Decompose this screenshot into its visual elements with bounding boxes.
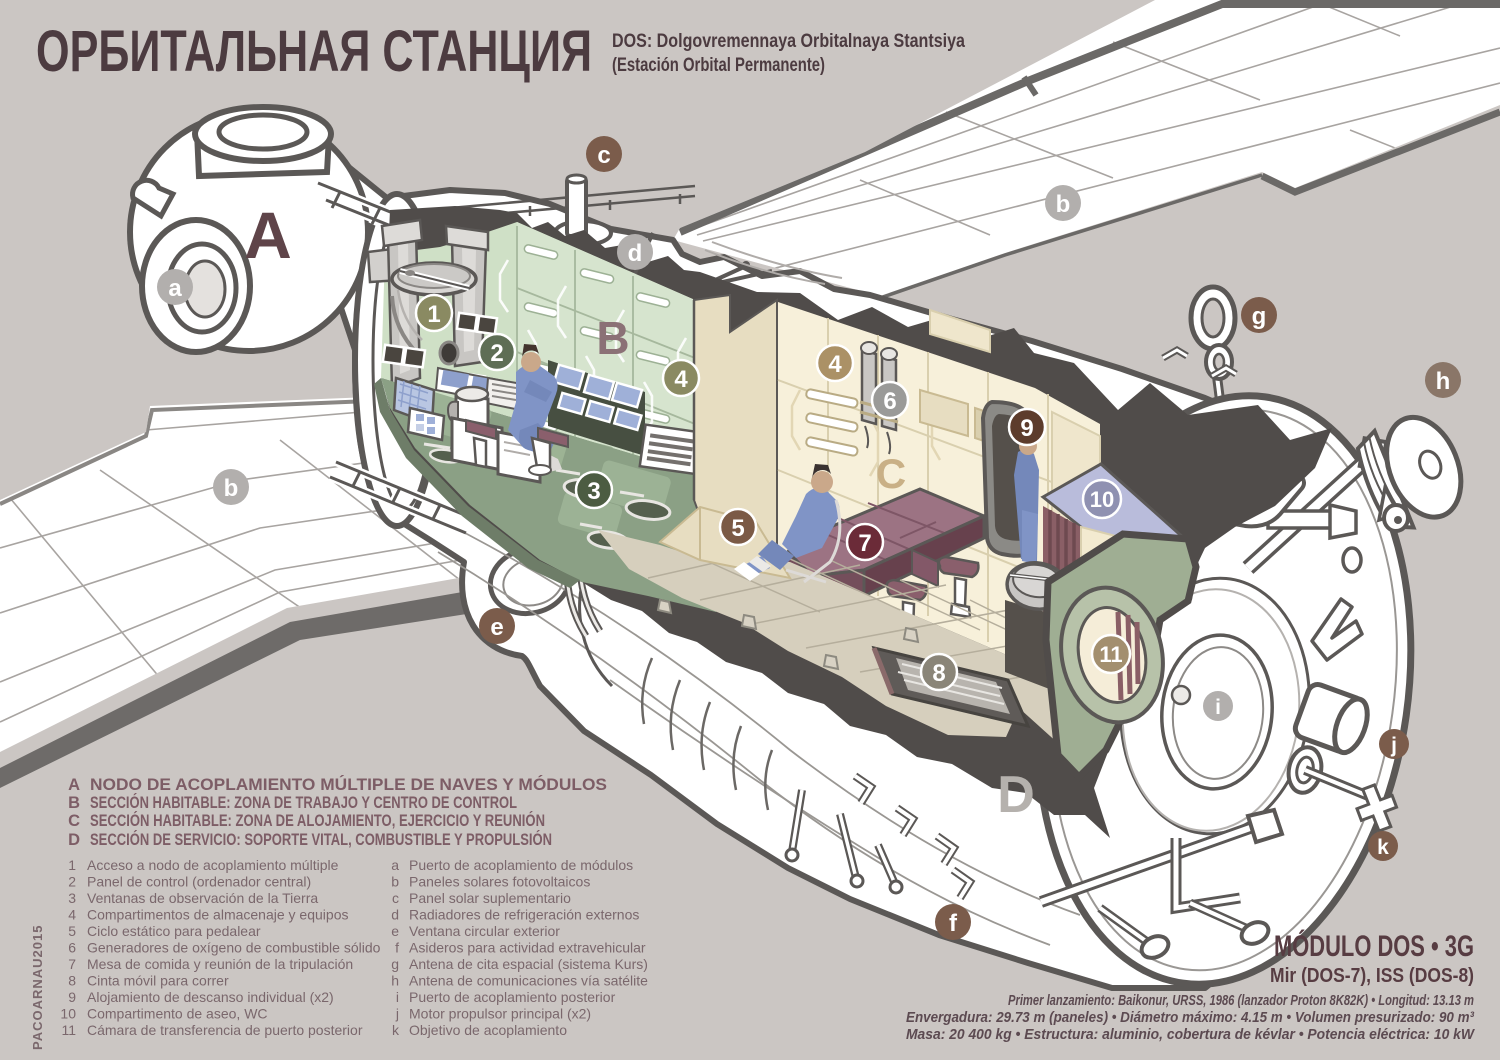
svg-text:C: C bbox=[876, 450, 906, 497]
svg-text:Asideros para actividad extrav: Asideros para actividad extravehicular bbox=[409, 940, 646, 956]
svg-text:Antena de cita espacial (siste: Antena de cita espacial (sistema Kurs) bbox=[409, 956, 648, 972]
svg-text:Mir (DOS-7), ISS (DOS-8): Mir (DOS-7), ISS (DOS-8) bbox=[1270, 965, 1474, 987]
svg-text:c: c bbox=[597, 142, 610, 169]
svg-text:c: c bbox=[392, 890, 399, 906]
svg-text:j: j bbox=[1390, 734, 1397, 757]
svg-text:4: 4 bbox=[828, 351, 842, 378]
svg-text:d: d bbox=[628, 240, 643, 267]
svg-text:Puerto de acoplamiento posteri: Puerto de acoplamiento posterior bbox=[409, 989, 616, 1005]
svg-text:Ciclo estático para pedalear: Ciclo estático para pedalear bbox=[87, 923, 261, 939]
svg-text:Cámara de transferencia de pue: Cámara de transferencia de puerto poster… bbox=[87, 1022, 363, 1038]
svg-text:Envergadura: 29.73 m (paneles): Envergadura: 29.73 m (paneles) • Diámetr… bbox=[906, 1009, 1475, 1026]
svg-text:g: g bbox=[1252, 303, 1267, 330]
svg-text:Ventanas de observación de la: Ventanas de observación de la Tierra bbox=[87, 890, 318, 906]
svg-text:Motor propulsor principal (x2): Motor propulsor principal (x2) bbox=[409, 1006, 591, 1022]
svg-text:Masa: 20 400 kg • Estructura:: Masa: 20 400 kg • Estructura: aluminio, … bbox=[906, 1026, 1476, 1043]
svg-text:NODO DE ACOPLAMIENTO MÚLTIPLE: NODO DE ACOPLAMIENTO MÚLTIPLE DE NAVES Y… bbox=[90, 775, 607, 794]
svg-text:MÓDULO DOS • 3G: MÓDULO DOS • 3G bbox=[1274, 929, 1474, 963]
svg-text:(Estación Orbital Permanente): (Estación Orbital Permanente) bbox=[612, 55, 825, 76]
svg-text:k: k bbox=[392, 1022, 400, 1038]
svg-text:9: 9 bbox=[68, 989, 76, 1005]
svg-text:8: 8 bbox=[68, 973, 76, 989]
svg-text:SECCIÓN DE SERVICIO: SOPORTE V: SECCIÓN DE SERVICIO: SOPORTE VITAL, COMB… bbox=[90, 830, 552, 849]
svg-text:f: f bbox=[949, 910, 958, 937]
svg-text:4: 4 bbox=[68, 907, 76, 923]
svg-text:j: j bbox=[395, 1006, 399, 1022]
svg-text:A: A bbox=[68, 776, 80, 794]
svg-text:8: 8 bbox=[932, 660, 945, 687]
svg-text:Puerto de acoplamiento de módu: Puerto de acoplamiento de módulos bbox=[409, 857, 633, 873]
svg-text:10: 10 bbox=[60, 1006, 76, 1022]
svg-text:f: f bbox=[395, 940, 399, 956]
svg-text:11: 11 bbox=[1099, 642, 1122, 667]
svg-text:PACOARNAU2015: PACOARNAU2015 bbox=[30, 925, 45, 1050]
svg-text:5: 5 bbox=[731, 515, 744, 542]
svg-text:Radiadores de refrigeración ex: Radiadores de refrigeración externos bbox=[409, 907, 639, 923]
svg-text:B: B bbox=[68, 794, 80, 812]
svg-text:Paneles solares fotovoltaicos: Paneles solares fotovoltaicos bbox=[409, 874, 590, 890]
svg-text:Antena de comunicaciones vía s: Antena de comunicaciones vía satélite bbox=[409, 973, 648, 989]
svg-text:Panel de control (ordenador ce: Panel de control (ordenador central) bbox=[87, 874, 311, 890]
svg-text:5: 5 bbox=[68, 923, 76, 939]
svg-text:Cinta móvil para correr: Cinta móvil para correr bbox=[87, 973, 229, 989]
svg-text:i: i bbox=[396, 989, 399, 1005]
svg-text:B: B bbox=[596, 312, 629, 364]
svg-text:7: 7 bbox=[858, 530, 871, 557]
svg-text:3: 3 bbox=[587, 478, 600, 505]
svg-text:a: a bbox=[168, 275, 182, 302]
svg-text:A: A bbox=[244, 198, 292, 272]
svg-text:e: e bbox=[391, 923, 399, 939]
svg-text:3: 3 bbox=[68, 890, 76, 906]
svg-text:7: 7 bbox=[68, 956, 76, 972]
svg-text:b: b bbox=[1056, 191, 1071, 218]
svg-text:Ventana circular exterior: Ventana circular exterior bbox=[409, 923, 560, 939]
svg-text:DOS: Dolgovremennaya Orbitalna: DOS: Dolgovremennaya Orbitalnaya Stantsi… bbox=[612, 31, 965, 52]
svg-text:6: 6 bbox=[68, 940, 76, 956]
svg-text:g: g bbox=[391, 956, 399, 972]
svg-text:Alojamiento de descanso indivi: Alojamiento de descanso individual (x2) bbox=[87, 989, 334, 1005]
svg-text:h: h bbox=[1436, 368, 1451, 395]
svg-text:9: 9 bbox=[1020, 415, 1033, 442]
svg-text:Acceso a nodo de acoplamiento: Acceso a nodo de acoplamiento múltiple bbox=[87, 857, 339, 873]
svg-text:10: 10 bbox=[1090, 487, 1114, 512]
svg-text:ОРБИТАЛЬНАЯ СТАНЦИЯ: ОРБИТАЛЬНАЯ СТАНЦИЯ bbox=[36, 19, 592, 84]
svg-text:Compartimento de aseo, WC: Compartimento de aseo, WC bbox=[87, 1006, 268, 1022]
svg-text:1: 1 bbox=[427, 301, 440, 328]
svg-text:D: D bbox=[68, 831, 80, 849]
svg-text:Panel solar suplementario: Panel solar suplementario bbox=[409, 890, 571, 906]
svg-text:Mesa de comida y reunión de la: Mesa de comida y reunión de la tripulaci… bbox=[87, 956, 353, 972]
svg-text:2: 2 bbox=[68, 874, 76, 890]
svg-text:k: k bbox=[1377, 836, 1389, 859]
svg-text:6: 6 bbox=[883, 388, 896, 415]
svg-text:Generadores de oxígeno de comb: Generadores de oxígeno de combustible só… bbox=[87, 940, 381, 956]
svg-text:h: h bbox=[391, 973, 399, 989]
svg-text:i: i bbox=[1215, 696, 1221, 719]
svg-text:SECCIÓN HABITABLE: ZONA DE ALO: SECCIÓN HABITABLE: ZONA DE ALOJAMIENTO, … bbox=[90, 811, 545, 830]
svg-text:Objetivo de acoplamiento: Objetivo de acoplamiento bbox=[409, 1022, 567, 1038]
svg-text:e: e bbox=[490, 614, 503, 641]
svg-text:1: 1 bbox=[68, 857, 76, 873]
svg-text:4: 4 bbox=[674, 366, 688, 393]
svg-text:C: C bbox=[68, 812, 80, 830]
svg-text:b: b bbox=[224, 475, 239, 502]
svg-text:a: a bbox=[391, 857, 399, 873]
svg-text:Primer lanzamiento: Baikonur,: Primer lanzamiento: Baikonur, URSS, 1986… bbox=[1008, 992, 1474, 1009]
svg-text:2: 2 bbox=[490, 340, 503, 367]
svg-text:D: D bbox=[997, 766, 1035, 824]
svg-text:b: b bbox=[391, 874, 399, 890]
svg-text:d: d bbox=[391, 907, 399, 923]
svg-text:11: 11 bbox=[61, 1022, 76, 1038]
svg-text:Compartimentos de almacenaje y: Compartimentos de almacenaje y equipos bbox=[87, 907, 348, 923]
svg-text:SECCIÓN HABITABLE: ZONA DE TRA: SECCIÓN HABITABLE: ZONA DE TRABAJO Y CEN… bbox=[90, 793, 517, 812]
